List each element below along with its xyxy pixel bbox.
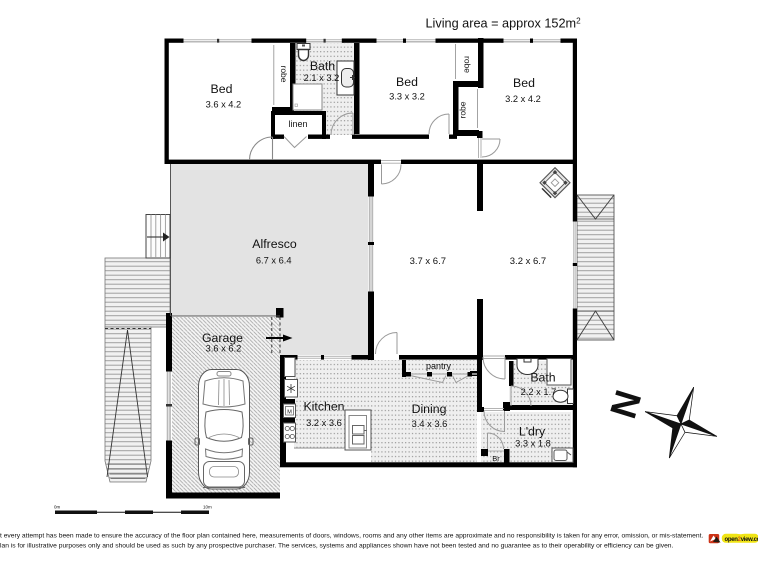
svg-text:3.7 x 6.7: 3.7 x 6.7 bbox=[410, 256, 446, 267]
svg-text:Bed: Bed bbox=[396, 75, 418, 89]
svg-text:pantry: pantry bbox=[426, 361, 452, 371]
svg-text:3.3 x 1.8: 3.3 x 1.8 bbox=[515, 439, 551, 449]
svg-text:lan is for illustrative purpos: lan is for illustrative purposes only an… bbox=[0, 542, 674, 549]
svg-text:robe: robe bbox=[463, 56, 473, 73]
svg-text:linen: linen bbox=[288, 119, 307, 129]
svg-text:robe: robe bbox=[458, 101, 468, 118]
svg-text:N: N bbox=[602, 385, 649, 423]
svg-text:Dining: Dining bbox=[412, 402, 447, 416]
svg-text:Living area = approx 152m2: Living area = approx 152m2 bbox=[426, 17, 582, 31]
svg-text:Bed: Bed bbox=[513, 76, 535, 90]
svg-text:2.1 x 3.2: 2.1 x 3.2 bbox=[304, 73, 340, 83]
svg-text:Bed: Bed bbox=[211, 82, 233, 96]
svg-text:L'dry: L'dry bbox=[519, 425, 546, 439]
svg-text:2.2 x 1.7: 2.2 x 1.7 bbox=[521, 387, 557, 397]
svg-text:Bath: Bath bbox=[530, 371, 555, 385]
svg-text:3.6 x 4.2: 3.6 x 4.2 bbox=[206, 100, 242, 110]
svg-text:3.2 x 4.2: 3.2 x 4.2 bbox=[505, 94, 541, 104]
svg-text:Alfresco: Alfresco bbox=[252, 237, 297, 251]
svg-text:10m: 10m bbox=[203, 505, 212, 510]
svg-text:0m: 0m bbox=[54, 505, 61, 510]
svg-text:Br: Br bbox=[492, 454, 500, 463]
svg-text:3.2 x 6.7: 3.2 x 6.7 bbox=[510, 256, 546, 267]
svg-text:M: M bbox=[287, 410, 292, 416]
svg-text:t every attempt has been made: t every attempt has been made to ensure … bbox=[0, 533, 703, 540]
svg-text:Kitchen: Kitchen bbox=[303, 400, 344, 414]
svg-text:Bath: Bath bbox=[310, 59, 335, 73]
svg-text:robe: robe bbox=[279, 65, 289, 82]
svg-text:3.6 x 6.2: 3.6 x 6.2 bbox=[206, 344, 242, 354]
svg-text:3.2 x 3.6: 3.2 x 3.6 bbox=[306, 418, 342, 428]
svg-text:open2view.co: open2view.co bbox=[725, 537, 758, 543]
svg-text:6.7 x 6.4: 6.7 x 6.4 bbox=[256, 256, 292, 266]
svg-text:3.3 x 3.2: 3.3 x 3.2 bbox=[389, 92, 425, 102]
svg-text:3.4 x 3.6: 3.4 x 3.6 bbox=[412, 419, 448, 429]
